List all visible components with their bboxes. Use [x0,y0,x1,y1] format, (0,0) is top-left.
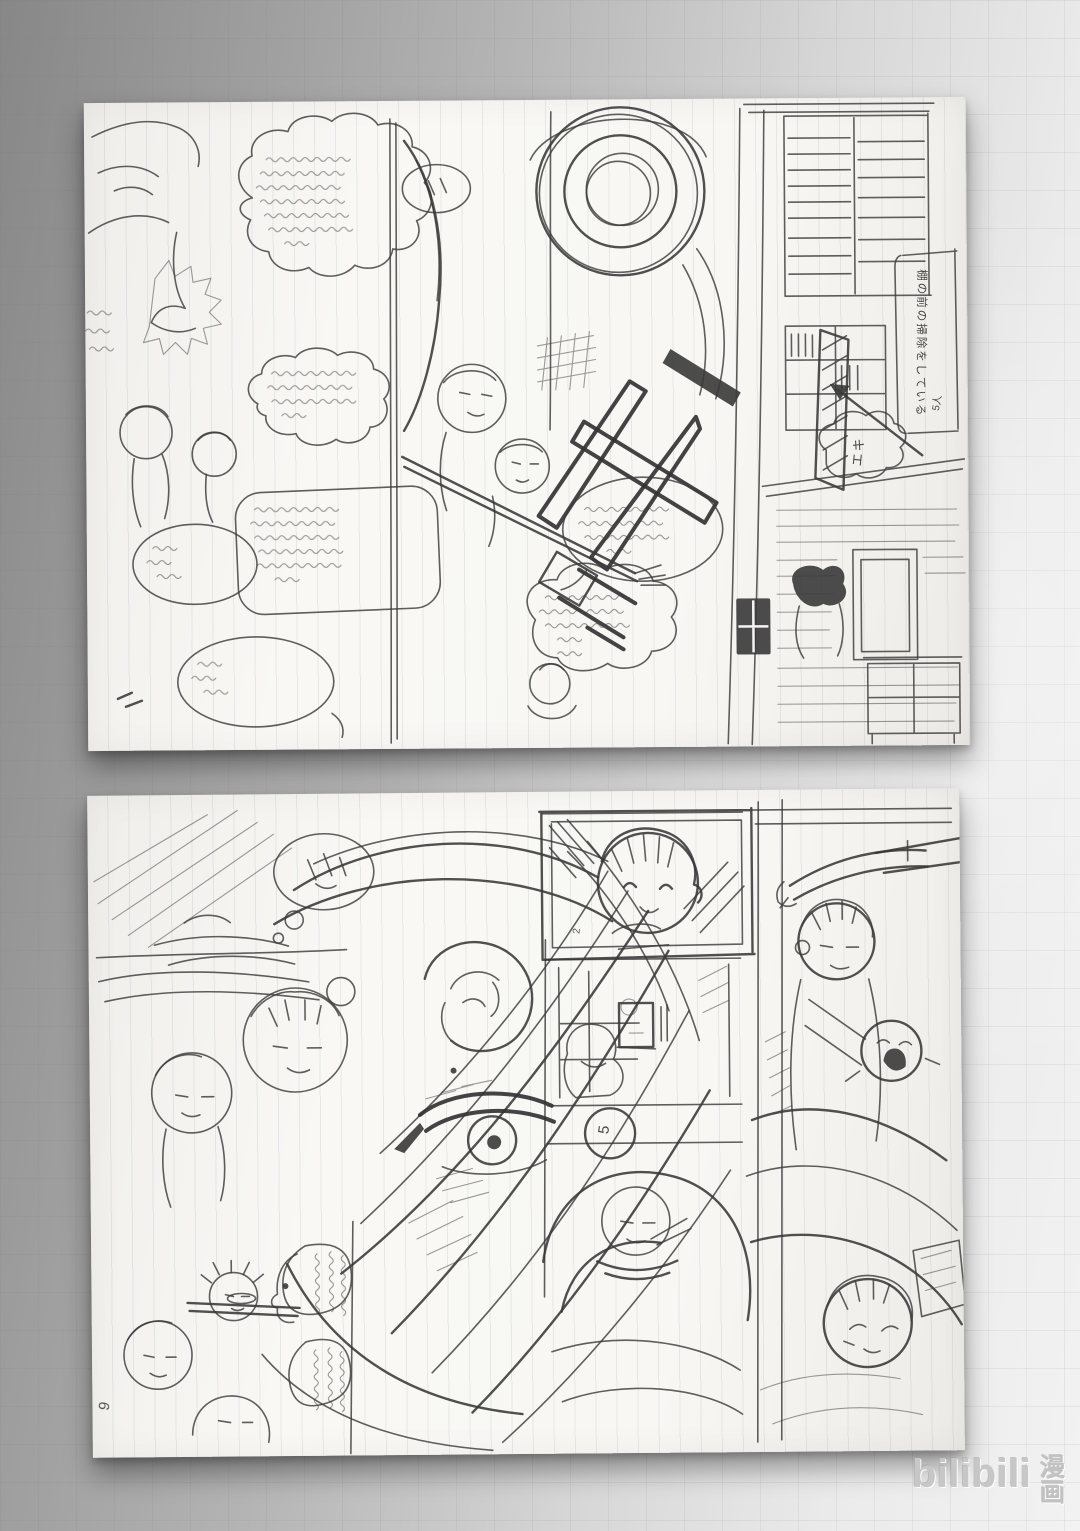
big-face-closeup [257,829,732,1452]
panel-borders [95,798,957,1455]
bilibili-logo-text: bilibili [912,1452,1032,1497]
block-sfx-letters [537,349,742,650]
storyboard-sketch-top [84,97,971,751]
left-column-faces [151,977,357,1207]
house-exterior [735,459,966,745]
bookshelf [744,103,937,490]
right-column-figures [744,838,965,1424]
storyboard-page-bottom[interactable]: 9 5 2 [87,788,965,1458]
bottom-left-cluster [123,1244,353,1443]
panel-borders [387,108,768,747]
hatch-patch [537,332,595,390]
handwriting-scribbles [313,1252,346,1412]
handwriting-scribbles-left [84,157,358,695]
storyboard-page-top[interactable]: 棚の前の掃除をしている 5人 エキ [84,97,971,751]
margin-note-box [895,249,958,433]
screenshot-stage: 棚の前の掃除をしている 5人 エキ [0,0,1080,1531]
manhua-suffix-text: 漫画 [1038,1454,1064,1504]
bilibili-watermark: bilibili 漫画 [912,1452,1064,1504]
bed-scene-topleft [93,809,375,1001]
photo-frame [539,808,754,960]
storyboard-sketch-bottom [87,788,965,1458]
